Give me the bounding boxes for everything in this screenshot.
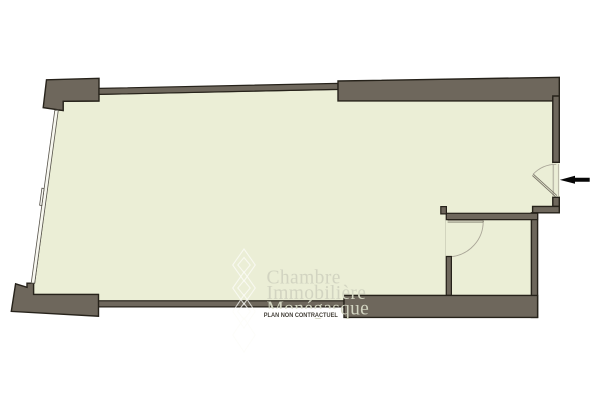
svg-text:PLAN NON CONTRACTUEL: PLAN NON CONTRACTUEL <box>264 312 338 319</box>
